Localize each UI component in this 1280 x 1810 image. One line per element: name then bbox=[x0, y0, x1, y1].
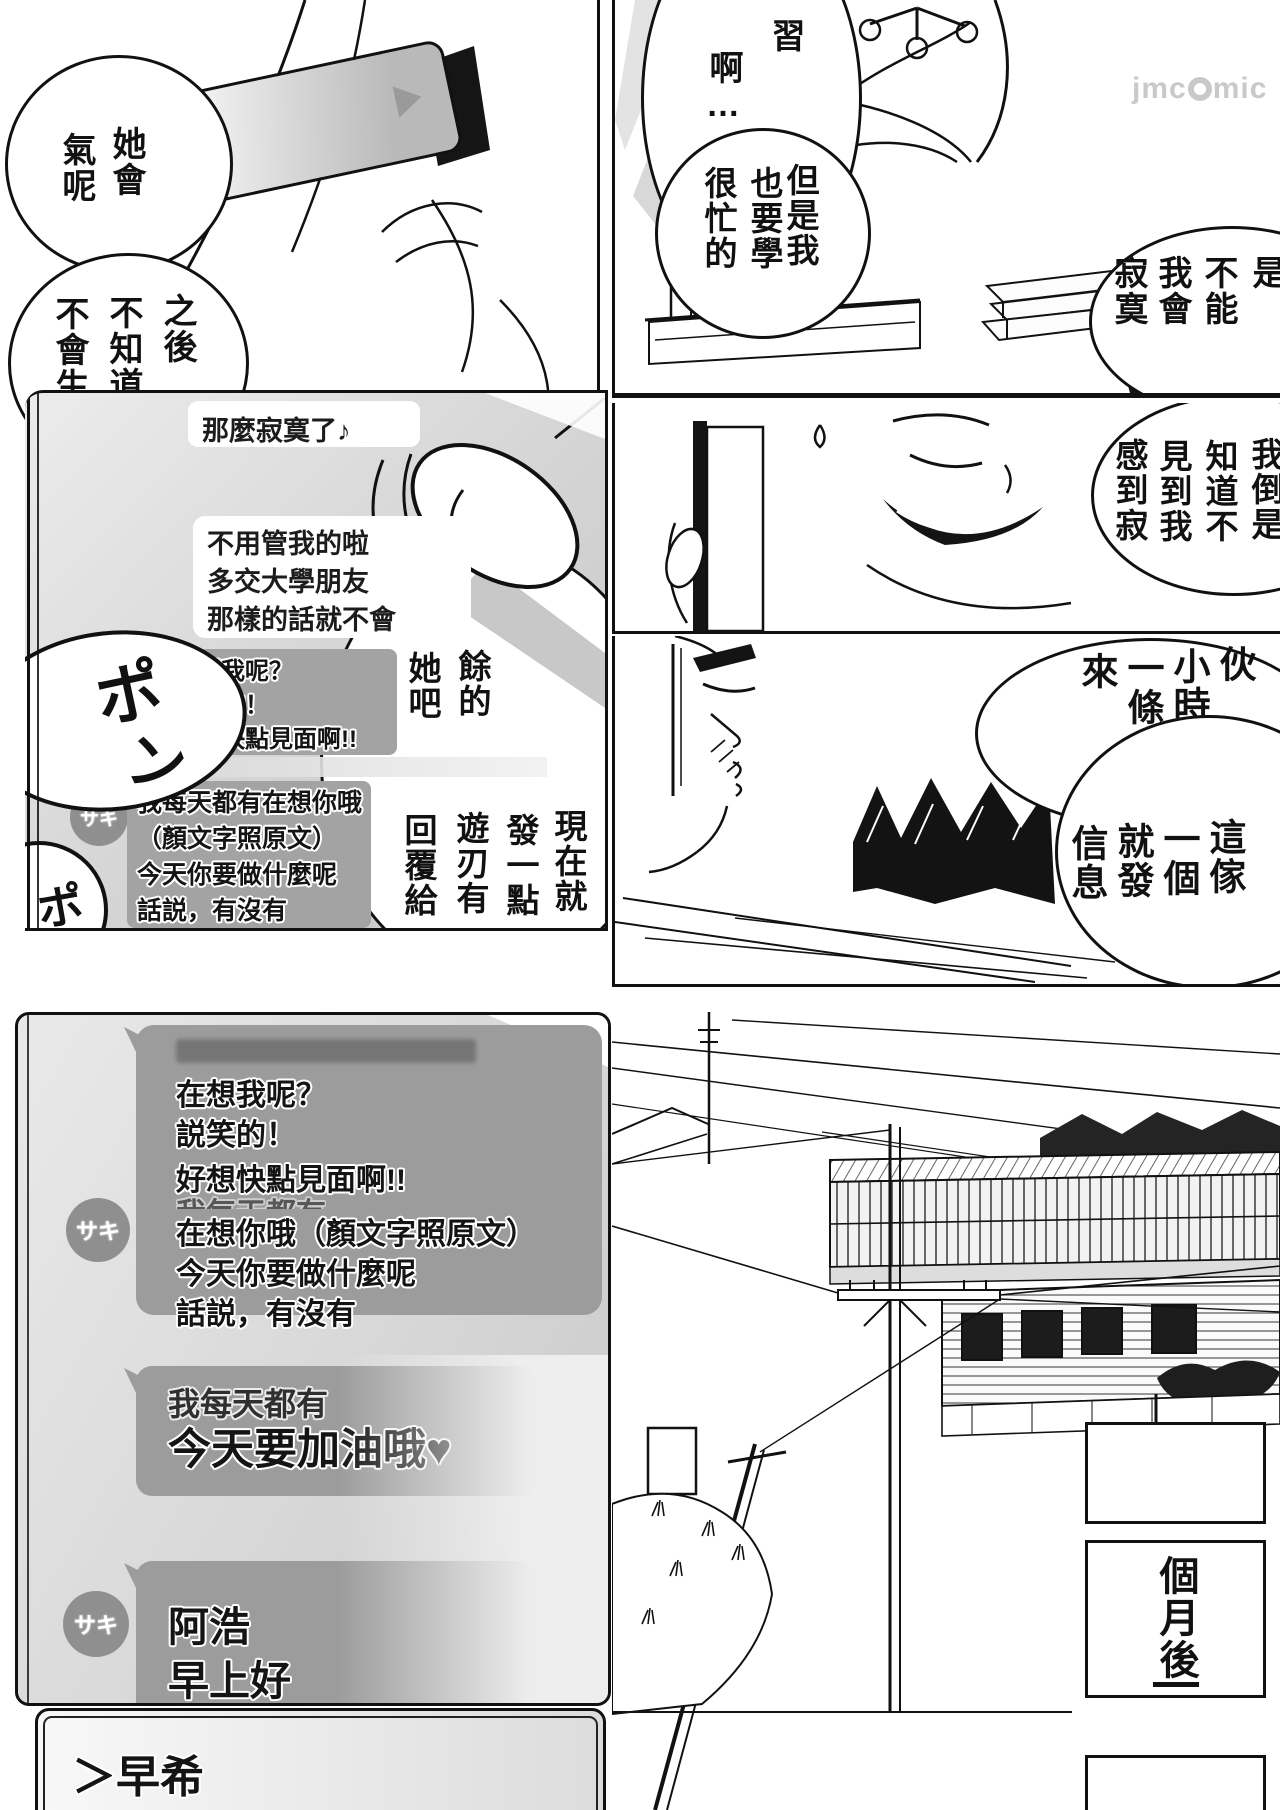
bubble3-tail bbox=[124, 1563, 154, 1591]
play-icon bbox=[393, 81, 425, 118]
bubbleA-col-right: 習 bbox=[766, 18, 804, 54]
chat-message-2-line3: 那樣的話就不會 bbox=[207, 598, 396, 637]
bubbleB-col-left: 很忙的 bbox=[700, 166, 737, 271]
phone-frame-line1 bbox=[27, 393, 30, 928]
bubbleC-col1: 寂寞 bbox=[1109, 255, 1147, 327]
garbled-line bbox=[176, 1039, 476, 1063]
watermark-logo: jmcmic bbox=[1132, 72, 1267, 106]
watermark-text-post: mic bbox=[1213, 72, 1268, 105]
panel-chat-top: 她吧 餘的 回覆給 遊刃有 發一點 現在就 那麼寂寞了♪ 不用管我的啦 多交大學… bbox=[25, 390, 608, 931]
bubble1-col-right: 她會 bbox=[107, 126, 145, 198]
bubbleB-col-right: 但是我 bbox=[782, 163, 819, 268]
chat-frame-inner-line bbox=[27, 1015, 29, 1703]
caption-month-text: 個月後 bbox=[1153, 1555, 1199, 1681]
phone-frame-line2 bbox=[37, 393, 39, 928]
caption-box-empty bbox=[1085, 1422, 1266, 1524]
bubbleC-col4: 是 bbox=[1247, 255, 1280, 291]
bb-line6: 今天你要做什麼呢 bbox=[176, 1249, 416, 1293]
reply-preview-text: ＞早希 bbox=[72, 1741, 204, 1805]
chat-message-2-line2: 多交大學朋友 bbox=[207, 560, 369, 599]
bubbleD-col4: 我倒是 bbox=[1247, 437, 1280, 542]
panel-desk-scene: 啊… 習 很忙的 也要學 但是我 寂寞 我會 不能 是 bbox=[612, 0, 1280, 398]
bubbleC-col3: 不能 bbox=[1199, 255, 1237, 327]
avatar-saki-2: サキ bbox=[63, 1591, 129, 1657]
bb-line1: 在想我呢？ bbox=[176, 1070, 326, 1114]
bubbleB-col-mid: 也要學 bbox=[746, 166, 783, 271]
watermark-text-pre: jmc bbox=[1132, 72, 1187, 105]
caption-box-month: 個月後 bbox=[1085, 1540, 1266, 1698]
vb-lower-col3: 發一點 bbox=[502, 813, 539, 918]
bb-line7: 話説，有沒有 bbox=[176, 1289, 356, 1333]
bb-line2: 説笑的！ bbox=[176, 1110, 296, 1154]
vb-lower-col1: 回覆給 bbox=[400, 813, 437, 918]
bubbleE-low-col4: 這傢 bbox=[1203, 818, 1245, 896]
bubbleE-up-col2: 一條 bbox=[1121, 649, 1163, 727]
bubbleE-up-col4: 伙 bbox=[1213, 645, 1255, 684]
bb-line5: 在想你哦（顏文字照原文） bbox=[176, 1209, 536, 1253]
bubbleC-col2: 我會 bbox=[1153, 255, 1191, 327]
vb-lower-col4: 現在就 bbox=[550, 809, 587, 914]
panel-landscape: 個月後 bbox=[612, 1012, 1280, 1810]
b3-line2: 早上好 bbox=[168, 1647, 291, 1706]
bubble2-col-left: 不會生 bbox=[50, 296, 88, 404]
vb-lower-col2: 遊刃有 bbox=[452, 811, 489, 916]
bubbleA-col-left: 啊… bbox=[704, 50, 742, 126]
panel-phone-smile: 感到寂 見到我 知道不 我倒是 bbox=[612, 403, 1280, 634]
right-fade-overlay bbox=[338, 1355, 608, 1706]
caption-box-bottom bbox=[1085, 1755, 1266, 1810]
bubbleE-up-col3: 小時 bbox=[1167, 647, 1209, 725]
bubbleD-col2: 見到我 bbox=[1155, 439, 1192, 544]
watermark-o-icon bbox=[1188, 77, 1212, 101]
bubble2-col-mid: 不知道 bbox=[104, 295, 142, 403]
chat-message-1-text: 那麼寂寞了♪ bbox=[202, 409, 351, 448]
bubble2-col-right: 之後 bbox=[158, 293, 196, 365]
bubble-tail bbox=[124, 1027, 154, 1055]
panel-top-left-face: 氣呢 她會 不會生 不知道 之後 bbox=[0, 0, 605, 390]
gray2-line4: 話説，有沒有 bbox=[137, 891, 287, 927]
bubbleE-low-col1: 信息 bbox=[1065, 824, 1107, 902]
sfx-pon-bottom: ン bbox=[121, 711, 193, 806]
bubble2-tail bbox=[124, 1368, 154, 1396]
chat-message-1: 那麼寂寞了♪ bbox=[188, 401, 420, 447]
bb-line4-faded: 我每天都有 bbox=[176, 1189, 326, 1209]
caption-dash bbox=[1153, 1682, 1199, 1687]
avatar-saki-1: サキ bbox=[66, 1198, 130, 1262]
manga-page: 氣呢 她會 不會生 不知道 之後 她吧 餘的 回覆給 遊刃有 發一點 現在就 那… bbox=[0, 0, 1280, 1810]
bubbleD-col1: 感到寂 bbox=[1111, 438, 1148, 543]
bubbleE-low-col2: 就發 bbox=[1111, 822, 1153, 900]
panel-chat-bottom: 在想我呢？ 説笑的！ 好想快點見面啊!! 我每天都有 在想你哦（顏文字照原文） … bbox=[15, 1012, 611, 1706]
panel-profile: 來 一條 小時 伙 信息 就發 一個 這傢 bbox=[612, 636, 1280, 987]
chat-message-2-line1: 不用管我的啦 bbox=[207, 522, 369, 561]
bubbleE-low-col3: 一個 bbox=[1157, 820, 1199, 898]
bubble1-col-left: 氣呢 bbox=[57, 132, 95, 204]
chat-message-2: 不用管我的啦 多交大學朋友 那樣的話就不會 bbox=[193, 516, 471, 638]
bubbleD-col3: 知道不 bbox=[1201, 439, 1238, 544]
b3-line1: 阿浩 bbox=[168, 1593, 250, 1653]
gray2-line2: （顏文字照原文） bbox=[137, 819, 337, 855]
bubbleE-up-col1: 來 bbox=[1075, 652, 1117, 691]
reply-preview-box: ＞早希 bbox=[35, 1708, 606, 1810]
gray2-line3: 今天你要做什麼呢 bbox=[137, 855, 337, 891]
